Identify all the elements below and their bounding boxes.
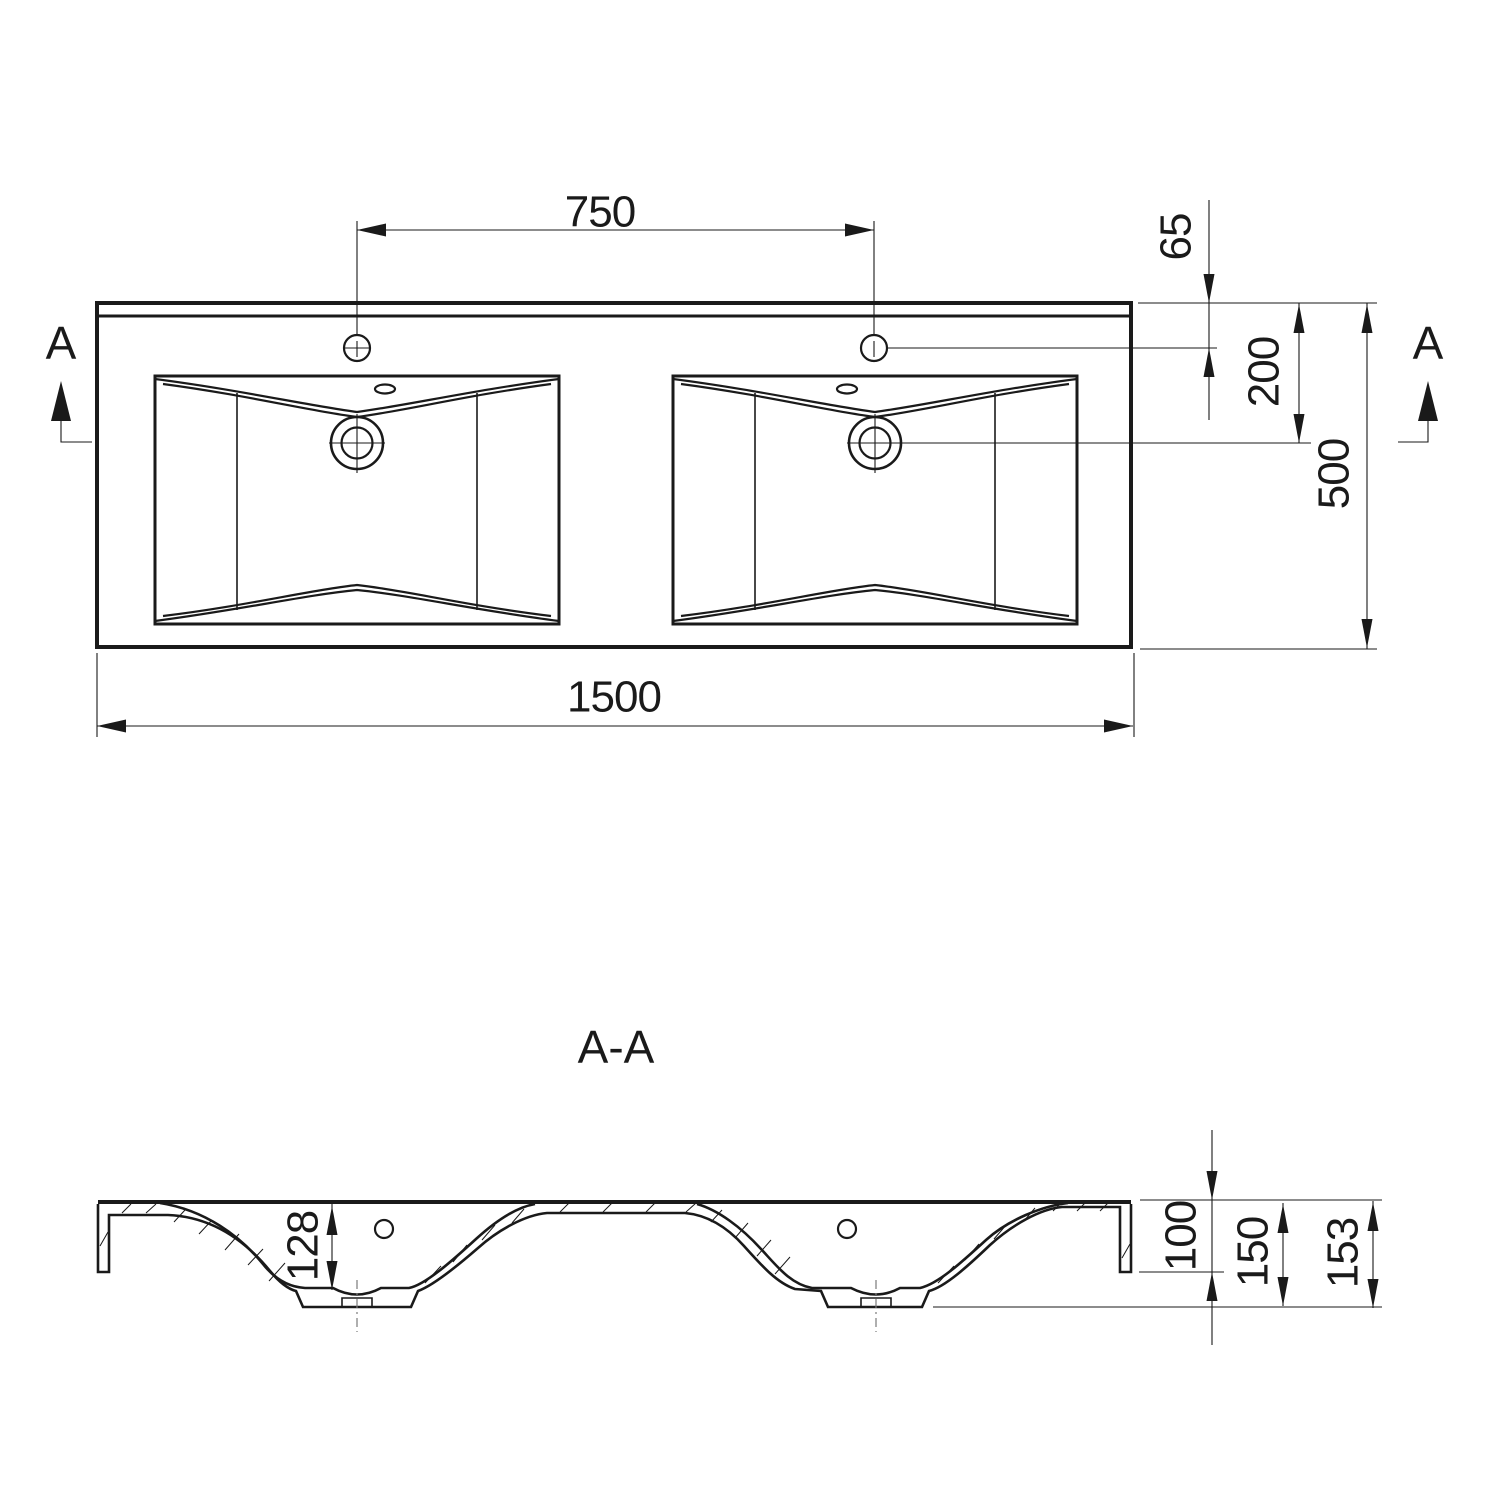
- arrowhead-top: [1278, 1204, 1289, 1233]
- dim-750-label: 750: [565, 188, 635, 237]
- dim-basin-depth: 128: [279, 1204, 338, 1290]
- arrowhead-bottom: [327, 1261, 338, 1290]
- dim-500-label: 500: [1310, 439, 1359, 509]
- section-arrow-right-tail: [1398, 421, 1428, 442]
- arrowhead-bottom: [1278, 1277, 1289, 1306]
- section-outer-contour: [98, 1204, 1131, 1307]
- right-basin-top-rim-outer: [673, 379, 1077, 412]
- dim-128-label: 128: [279, 1211, 328, 1281]
- dim-65-label: 65: [1152, 214, 1201, 261]
- technical-drawing-canvas: 750 1500 65 200: [0, 0, 1500, 1500]
- countertop-outline: [97, 303, 1131, 647]
- arrowhead-bottom: [1294, 414, 1305, 443]
- arrowhead-top: [1207, 1171, 1218, 1200]
- right-basin: [673, 376, 1077, 624]
- arrowhead-top: [1362, 304, 1373, 333]
- dim-153-label: 153: [1319, 1218, 1368, 1288]
- left-basin-outline: [155, 376, 559, 624]
- dim-overall-depth: 500: [1310, 303, 1373, 649]
- top-view: [97, 303, 1131, 647]
- section-marker-right-label: A: [1413, 317, 1444, 369]
- right-basin-outline: [673, 376, 1077, 624]
- arrowhead-right: [845, 224, 874, 237]
- arrowhead-top: [1368, 1202, 1379, 1231]
- section-arrow-left-tail: [61, 421, 92, 442]
- arrowhead-top: [1294, 304, 1305, 333]
- left-overflow-hole: [375, 385, 395, 394]
- section-cut-marker-right: A: [1398, 317, 1444, 442]
- arrowhead-bottom: [1368, 1279, 1379, 1308]
- dim-1500-label: 1500: [567, 673, 661, 722]
- arrowhead-top: [1204, 274, 1215, 303]
- right-overflow-hole-section: [838, 1220, 856, 1238]
- dim-faucet-spacing: 750: [357, 188, 874, 335]
- dim-overall-height: 153: [1319, 1201, 1379, 1308]
- right-basin-bottom-rim-outer: [673, 590, 1077, 621]
- section-cut-marker-left: A: [46, 317, 92, 442]
- arrowhead-right: [1104, 720, 1133, 733]
- left-basin: [155, 376, 559, 624]
- arrowhead-bottom: [1207, 1272, 1218, 1301]
- dim-overall-width: 1500: [97, 653, 1134, 737]
- arrowhead-left: [97, 720, 126, 733]
- dim-100-label: 100: [1157, 1201, 1206, 1271]
- top-view-dimensions: 750 1500 65 200: [46, 188, 1444, 738]
- section-right-bowl-inner-surface: [697, 1203, 1068, 1295]
- dim-150-label: 150: [1229, 1217, 1278, 1287]
- drawing-sheet: 750 1500 65 200: [0, 0, 1500, 1500]
- right-overflow-hole: [837, 385, 857, 394]
- arrowhead-bottom: [1362, 619, 1373, 648]
- left-basin-bottom-rim-outer: [155, 590, 559, 621]
- arrowhead-top: [327, 1206, 338, 1235]
- dim-front-edge-height: 100: [1157, 1130, 1218, 1345]
- arrowhead-left: [357, 224, 386, 237]
- section-view: A-A: [98, 1021, 1131, 1332]
- arrowhead-bottom: [1204, 348, 1215, 377]
- section-arrow-right: [1418, 381, 1438, 421]
- section-title: A-A: [578, 1021, 655, 1073]
- dim-height-to-drain: 150: [1229, 1203, 1289, 1306]
- dim-faucet-offset: 65: [1152, 200, 1215, 420]
- left-overflow-hole-section: [375, 1220, 393, 1238]
- section-arrow-left: [51, 381, 71, 421]
- dim-200-label: 200: [1240, 337, 1289, 407]
- section-dimensions: 128 100 150 153: [279, 1130, 1383, 1345]
- section-marker-left-label: A: [46, 317, 77, 369]
- dim-drain-offset: 200: [1240, 303, 1305, 443]
- left-basin-top-rim-outer: [155, 379, 559, 412]
